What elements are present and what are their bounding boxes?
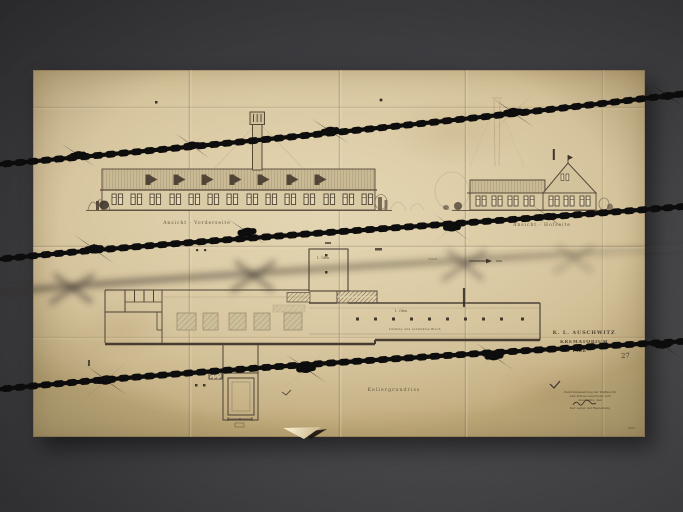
photo-background: Ansicht · Vorderseite Ansicht · Hofseite… [0, 0, 683, 512]
barb [222, 213, 271, 252]
barbed-wire-strand-top [0, 78, 683, 172]
barbed-wire-overlay [0, 0, 683, 512]
barbed-wire-strands [0, 78, 683, 400]
barbed-wire-strand-middle [0, 201, 683, 269]
barbed-wire-strand-bottom [0, 329, 683, 401]
